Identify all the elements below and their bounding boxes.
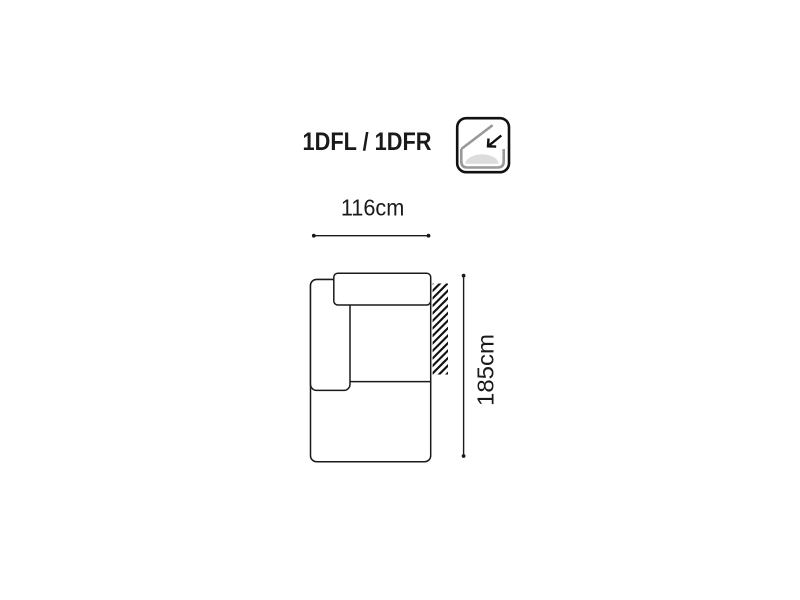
svg-text:185cm: 185cm [473, 334, 499, 406]
svg-text:1DFL / 1DFR: 1DFL / 1DFR [303, 128, 432, 156]
svg-text:116cm: 116cm [341, 195, 405, 221]
